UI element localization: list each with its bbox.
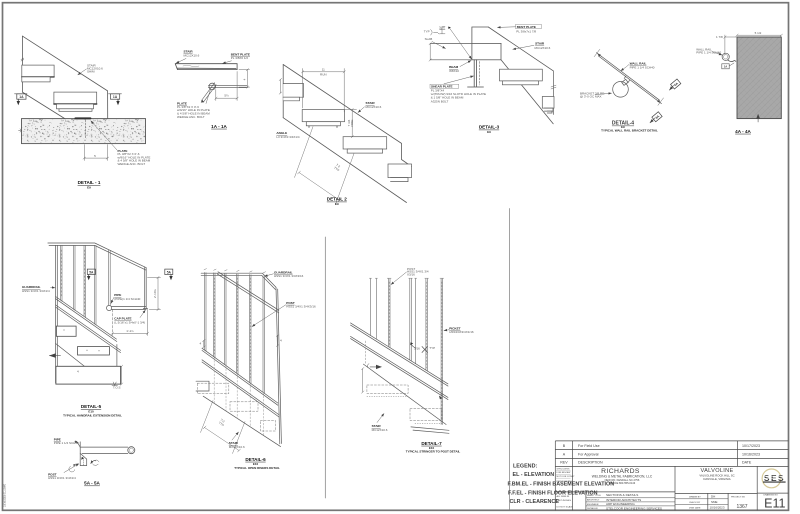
svg-text:EL - ELEVATION: EL - ELEVATION: [513, 472, 555, 478]
svg-text:SME: SME: [711, 500, 718, 504]
svg-text:5A: 5A: [89, 270, 94, 274]
svg-text:HSS3/4X3/4X1/16: HSS3/4X3/4X1/16: [449, 330, 474, 334]
svg-text:PROJECT NO: PROJECT NO: [731, 497, 745, 499]
svg-text:LEGEND:: LEGEND:: [513, 463, 537, 469]
svg-text:E9: E9: [87, 186, 91, 190]
svg-text:NOT FOR CONST: NOT FOR CONST: [557, 476, 576, 478]
svg-text:5 1/2: 5 1/2: [755, 31, 762, 35]
svg-text:HSS1 3/4X1 3/4X1/4: HSS1 3/4X1 3/4X1/4: [22, 289, 50, 293]
svg-text:HSS1 3/4X1 3/4X3/16: HSS1 3/4X1 3/4X3/16: [274, 274, 304, 278]
svg-text:WEDGE ANC. BOLT: WEDGE ANC. BOLT: [177, 115, 205, 119]
svg-text:A325N BOLT: A325N BOLT: [431, 99, 449, 103]
svg-text:4A - 4A: 4A - 4A: [735, 129, 751, 134]
svg-text:WELDING & METAL FABRICATION, L: WELDING & METAL FABRICATION, LLC: [592, 475, 653, 479]
svg-text:DESCRIPTION: DESCRIPTION: [578, 461, 603, 465]
svg-text:DWN DATE: DWN DATE: [689, 507, 701, 510]
svg-text:MC12X10.6: MC12X10.6: [366, 105, 382, 109]
svg-text:2'-10¾: 2'-10¾: [153, 288, 157, 298]
svg-text:WEDGE ANC. BOLT: WEDGE ANC. BOLT: [118, 162, 146, 166]
svg-text:10/17/2023: 10/17/2023: [742, 444, 760, 448]
svg-text:DETAIL-3: DETAIL-3: [479, 125, 500, 130]
svg-text:MC12X10.6: MC12X10.6: [372, 428, 388, 432]
svg-text:1367: 1367: [736, 504, 747, 510]
svg-text:CLR - CLEARENCE: CLR - CLEARENCE: [510, 499, 560, 505]
svg-text:DRAWN BY: DRAWN BY: [689, 496, 701, 499]
svg-text:HSS1 3/4X1 3/4X3/16: HSS1 3/4X1 3/4X3/16: [286, 305, 316, 309]
svg-text:TYP: TYP: [429, 346, 435, 350]
svg-text:BENT PLATE: BENT PLATE: [517, 25, 536, 29]
svg-text:5A - 5A: 5A - 5A: [84, 481, 100, 486]
svg-text:CHECK BY: CHECK BY: [689, 502, 701, 504]
svg-text:11: 11: [322, 68, 325, 72]
svg-text:3/16: 3/16: [439, 26, 445, 30]
svg-text:10/16/2023 E11.DWG: 10/16/2023 E11.DWG: [4, 484, 7, 507]
svg-text:1A: 1A: [113, 95, 118, 99]
svg-text:PIPE 1 1/4 SCH40: PIPE 1 1/4 SCH40: [696, 50, 721, 54]
svg-text:DETAILER: DETAILER: [587, 507, 598, 510]
svg-text:F.F.EL - FINISH FLOOR ELEVATIO: F.F.EL - FINISH FLOOR ELEVATION: [508, 490, 598, 496]
svg-text:1A - 1A: 1A - 1A: [211, 124, 227, 129]
svg-text:DETAIL 2: DETAIL 2: [327, 197, 347, 202]
svg-text:REV: REV: [560, 461, 568, 465]
svg-text:STRL DWGS: STRL DWGS: [557, 468, 570, 470]
svg-text:TYPICAL STRINGER TO POST DETAI: TYPICAL STRINGER TO POST DETAIL: [406, 450, 461, 454]
svg-text:F.BM.EL - FINISH BASEMENT ELEV: F.BM.EL - FINISH BASEMENT ELEVATION: [508, 481, 615, 487]
svg-text:SHIM: SHIM: [87, 70, 95, 74]
svg-text:For Field Use: For Field Use: [578, 444, 600, 448]
svg-text:RUN: RUN: [320, 72, 327, 76]
svg-text:STELCOOR ENGINEERING SERVICES: STELCOOR ENGINEERING SERVICES: [606, 506, 662, 510]
svg-text:1 7/8: 1 7/8: [716, 35, 723, 39]
svg-text:For Approval: For Approval: [578, 452, 599, 456]
svg-text:1'-1¾: 1'-1¾: [126, 329, 134, 333]
svg-text:1A: 1A: [724, 65, 728, 69]
svg-text:PL 3/8X6 1/2: PL 3/8X6 1/2: [231, 56, 249, 60]
svg-text:TYPICAL OPEN RISERS DETAIL: TYPICAL OPEN RISERS DETAIL: [234, 466, 280, 470]
svg-text:T.O.S: T.O.S: [113, 386, 121, 390]
svg-text:ARCHITECT: ARCHITECT: [587, 499, 600, 502]
svg-text:DO NOT SCALE: DO NOT SCALE: [557, 506, 574, 509]
svg-text:(L 5/16"x1 3/4x0'-1 3/4): (L 5/16"x1 3/4x0'-1 3/4): [114, 320, 145, 324]
svg-text:5A: 5A: [167, 270, 172, 274]
svg-text:PIPE 1 1/4 SCH40: PIPE 1 1/4 SCH40: [54, 441, 79, 445]
svg-text:PL 3/8x7x1 7/8: PL 3/8x7x1 7/8: [516, 29, 536, 33]
svg-text:SLAB: SLAB: [425, 37, 433, 41]
svg-text:SECTIONS & DETAILS: SECTIONS & DETAILS: [606, 493, 638, 497]
svg-text:MC12X10.6: MC12X10.6: [535, 46, 551, 50]
svg-text:10/16/2023: 10/16/2023: [710, 506, 725, 510]
svg-text:TYP: TYP: [424, 30, 430, 34]
svg-text:TYPICAL WALL RAIL BRACKET DETA: TYPICAL WALL RAIL BRACKET DETAIL: [601, 129, 658, 133]
svg-text:@ 3'-0 OC MAX: @ 3'-0 OC MAX: [580, 94, 601, 98]
svg-text:3/16: 3/16: [414, 346, 420, 350]
svg-text:E9: E9: [487, 130, 491, 134]
svg-text:L3 3/4X3 3/4X1/4: L3 3/4X3 3/4X1/4: [276, 135, 300, 139]
svg-text:E9: E9: [335, 202, 339, 206]
svg-text:DH: DH: [711, 495, 715, 499]
svg-text:MC12X10.6: MC12X10.6: [184, 53, 200, 57]
svg-text:1A: 1A: [19, 95, 24, 99]
svg-text:MC12X10.6: MC12X10.6: [229, 445, 245, 449]
svg-text:X3/16: X3/16: [407, 272, 415, 276]
svg-text:TYPICAL HANDRAIL EXTENSION DET: TYPICAL HANDRAIL EXTENSION DETAIL: [63, 413, 122, 417]
svg-text:DETAIL - 1: DETAIL - 1: [78, 180, 101, 185]
svg-text:HSS1 3/4X1 3/4X1/4: HSS1 3/4X1 3/4X1/4: [48, 476, 76, 480]
svg-text:PIPE 1 1/4 SCH40: PIPE 1 1/4 SCH40: [630, 65, 655, 69]
svg-text:DATE: DATE: [742, 461, 752, 465]
svg-text:DANVILLE, VIRGINIA: DANVILLE, VIRGINIA: [703, 477, 730, 481]
svg-text:(PIPE)1 1/4 SCH40: (PIPE)1 1/4 SCH40: [114, 297, 140, 301]
svg-text:E11: E11: [764, 496, 785, 510]
svg-text:FOR REVIEW: FOR REVIEW: [557, 472, 572, 474]
svg-text:ENGINEER: ENGINEER: [587, 504, 599, 506]
svg-text:5½: 5½: [224, 94, 229, 98]
svg-text:RISE: RISE: [350, 119, 354, 126]
svg-text:W8X10: W8X10: [449, 69, 459, 73]
svg-text:10/16/2023: 10/16/2023: [742, 452, 760, 456]
